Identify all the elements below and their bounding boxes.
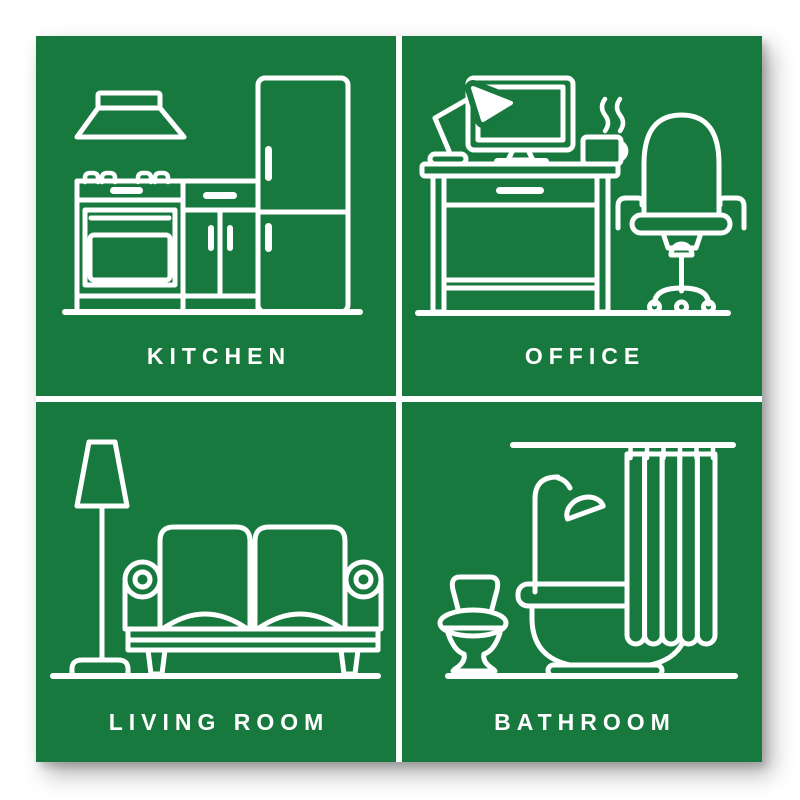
office-icon: [402, 36, 762, 396]
desk-top: [422, 164, 618, 176]
hood-canopy: [77, 108, 184, 137]
lamp-shade: [77, 442, 127, 506]
fridge-handle-bottom: [265, 223, 272, 252]
office-label: OFFICE: [402, 343, 762, 370]
fridge: [258, 78, 348, 312]
oven-window: [90, 235, 170, 280]
chair-backrest: [644, 115, 719, 215]
sofa-arm-right: [346, 562, 381, 597]
sofa-leg: [148, 650, 165, 674]
bathroom-label: BATHROOM: [402, 709, 762, 736]
shower-curtain: [627, 454, 645, 644]
panel-kitchen: KITCHEN: [36, 36, 396, 396]
shower-pipe: [535, 477, 558, 592]
panel-living-room: LIVING ROOM: [36, 402, 396, 762]
living-room-icon: [36, 402, 396, 762]
living-room-label: LIVING ROOM: [36, 709, 396, 736]
steam: [602, 99, 608, 131]
sofa-arm-left: [125, 562, 160, 597]
panel-office: OFFICE: [402, 36, 762, 396]
shower-head: [562, 492, 603, 519]
kitchen-icon: [36, 36, 396, 396]
sofa-leg: [341, 650, 358, 674]
chair-seat: [632, 215, 730, 233]
steam: [617, 99, 623, 131]
mug: [583, 137, 621, 164]
kitchen-label: KITCHEN: [36, 343, 396, 370]
lamp-base: [72, 660, 128, 674]
oven-door: [85, 210, 175, 285]
toilet-tank: [452, 577, 497, 609]
toilet-pedestal: [448, 633, 500, 671]
stove-handle: [110, 187, 143, 194]
bathroom-icon: [402, 402, 762, 762]
fridge-handle-top: [265, 146, 272, 181]
room-icons-poster: KITCHEN: [36, 36, 762, 762]
desk-drawer-handle: [496, 187, 544, 194]
drawer-handle: [203, 192, 237, 199]
panel-bathroom: BATHROOM: [402, 402, 762, 762]
